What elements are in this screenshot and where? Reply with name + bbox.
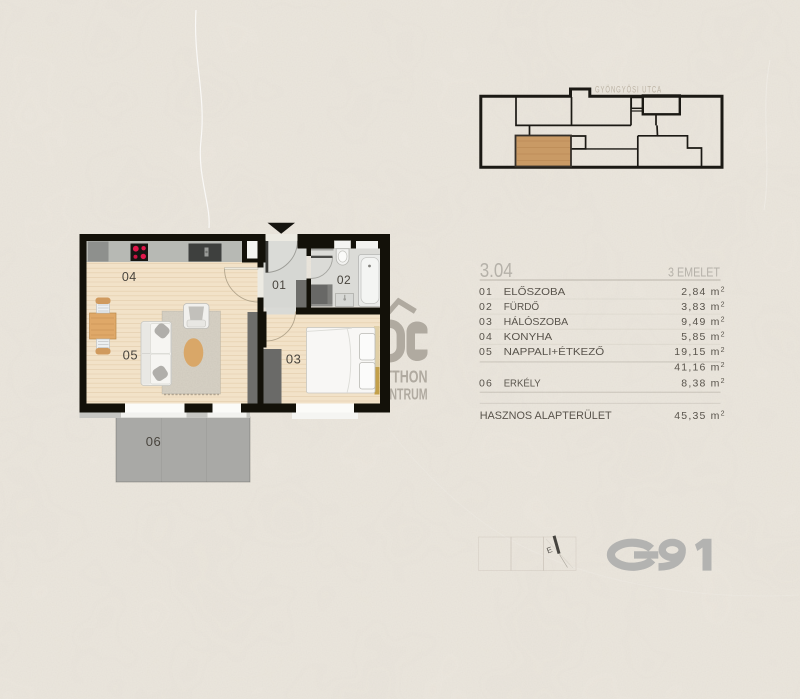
svg-text:ELŐSZOBA: ELŐSZOBA: [504, 284, 566, 298]
svg-text:01: 01: [479, 286, 493, 298]
svg-text:19,15 m2: 19,15 m2: [674, 346, 724, 358]
svg-text:06: 06: [479, 377, 493, 389]
svg-text:05: 05: [479, 346, 493, 358]
svg-text:3,83 m2: 3,83 m2: [681, 301, 724, 313]
svg-text:04: 04: [479, 331, 493, 343]
svg-text:KONYHA: KONYHA: [504, 331, 553, 343]
svg-text:5,85 m2: 5,85 m2: [681, 331, 724, 343]
svg-text:41,16 m2: 41,16 m2: [674, 362, 724, 374]
svg-text:02: 02: [337, 273, 351, 287]
svg-text:04: 04: [122, 270, 137, 284]
svg-text:FÜRDŐ: FÜRDŐ: [504, 299, 540, 313]
svg-text:03: 03: [286, 352, 301, 367]
svg-text:01: 01: [272, 278, 286, 292]
svg-text:2,84 m2: 2,84 m2: [681, 286, 724, 298]
svg-text:06: 06: [146, 434, 161, 449]
svg-text:45,35 m2: 45,35 m2: [674, 410, 724, 422]
svg-text:ERKÉLY: ERKÉLY: [504, 376, 541, 389]
svg-text:GYÖNGYÖSI UTCA: GYÖNGYÖSI UTCA: [595, 85, 662, 96]
svg-text:3.04: 3.04: [480, 260, 513, 282]
svg-text:HASZNOS ALAPTERÜLET: HASZNOS ALAPTERÜLET: [480, 410, 612, 422]
svg-text:05: 05: [123, 347, 138, 362]
svg-text:3 EMELET: 3 EMELET: [668, 266, 720, 280]
svg-text:NAPPALI+ÉTKEZŐ: NAPPALI+ÉTKEZŐ: [504, 344, 605, 358]
svg-text:03: 03: [479, 316, 493, 328]
svg-text:8,38 m2: 8,38 m2: [681, 377, 724, 389]
svg-text:02: 02: [479, 301, 493, 313]
svg-text:HÁLÓSZOBA: HÁLÓSZOBA: [504, 315, 569, 328]
svg-text:9,49 m2: 9,49 m2: [681, 316, 724, 328]
